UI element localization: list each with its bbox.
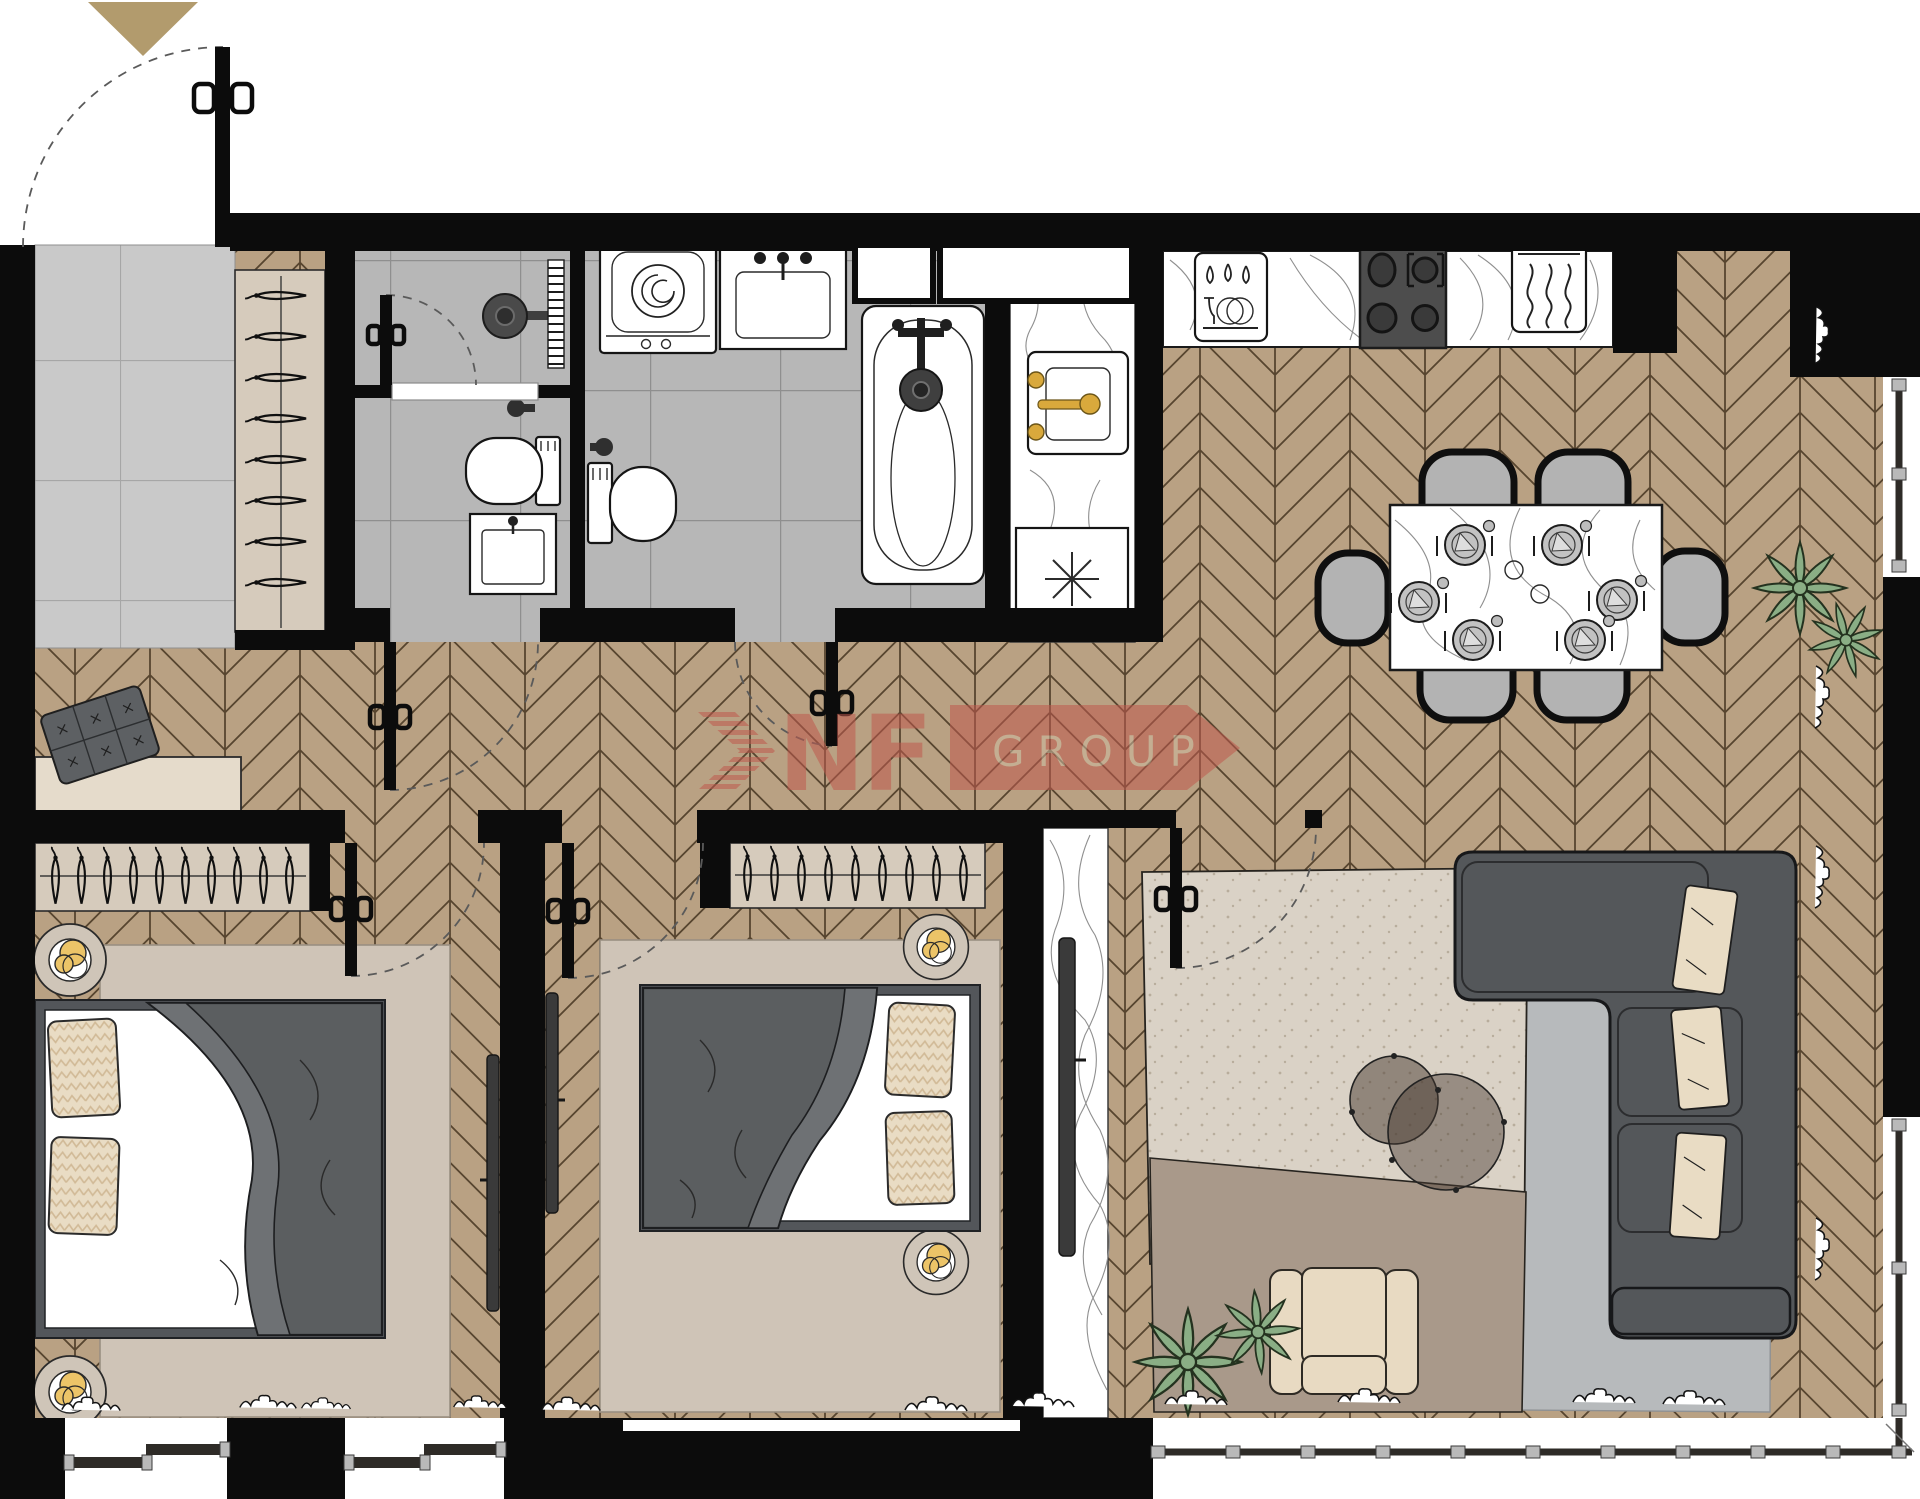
toilet-1 [466,437,560,505]
bedroom1-wardrobe [35,843,310,911]
oven-icon [1512,238,1586,332]
entry-hall-tile-floor [35,245,235,648]
dishwasher-icon [1195,253,1267,341]
watermark-letters: NF [778,693,930,815]
plant-icon [1754,542,1846,634]
bed-pillow [48,1137,119,1235]
floor-plan-page: NF GROUP [0,0,1920,1499]
dining-table [1390,505,1662,670]
bed-pillow [48,1018,121,1117]
cooktop-icon [1360,240,1446,348]
dining-chair [1655,551,1725,643]
floor-plan-svg: NF GROUP [0,0,1920,1499]
nightstand-lamp [904,1230,969,1295]
bed-pillow [885,1002,956,1097]
gold-faucet-washbasin [1028,352,1128,454]
dining-chair [1318,553,1388,643]
window-bedroom1b [344,1418,506,1499]
window-right-upper [1883,377,1920,577]
entry-door [23,47,252,247]
bed-2 [640,985,980,1231]
bathtub [862,306,984,584]
window-bedroom1 [64,1418,230,1499]
vanity-washbasin [720,245,846,349]
bed-1 [35,1000,385,1338]
shower-glass-threshold [392,383,538,400]
nightstand-lamp [34,1356,106,1428]
asterisk-icon [1045,552,1099,606]
bed-pillow [885,1111,954,1205]
nightstand-lamp [34,924,106,996]
kitchen-counter [1163,238,1613,348]
bedroom2-wardrobe [730,843,985,908]
window-right-lower [1883,1117,1920,1418]
wall-niches [855,245,1132,301]
towel-radiator-icon [548,260,564,368]
washbasin-1 [470,514,556,594]
entrance-arrow-icon [88,2,198,56]
entry-closet [235,270,325,632]
watermark-box-label: GROUP [992,727,1208,776]
washing-machine-icon [600,243,716,353]
nightstand-lamp [904,915,969,980]
window-panoramic-bottom [1151,1418,1920,1499]
tv-wall-marble [1043,828,1109,1418]
window-sill-bedroom2 [623,1420,1020,1431]
